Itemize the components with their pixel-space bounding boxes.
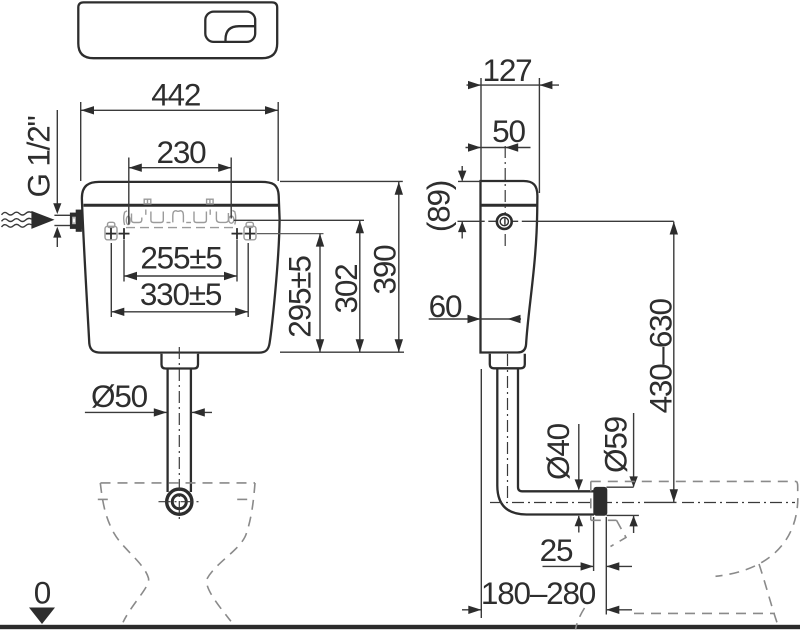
svg-text:230: 230: [157, 134, 207, 170]
svg-text:302: 302: [328, 265, 364, 314]
svg-text:180–280: 180–280: [481, 575, 596, 611]
svg-text:330±5: 330±5: [140, 276, 222, 312]
svg-text:0: 0: [34, 575, 51, 611]
svg-text:Ø40: Ø40: [540, 423, 576, 480]
svg-text:25: 25: [540, 532, 573, 568]
svg-text:50: 50: [492, 113, 525, 149]
svg-text:Ø59: Ø59: [598, 416, 634, 473]
svg-text:295±5: 295±5: [282, 256, 318, 338]
svg-text:390: 390: [367, 245, 403, 295]
svg-text:127: 127: [483, 52, 532, 88]
svg-text:(89): (89): [421, 181, 457, 232]
svg-text:430–630: 430–630: [643, 299, 679, 414]
svg-text:G 1/2": G 1/2": [21, 116, 57, 197]
svg-text:255±5: 255±5: [140, 240, 222, 276]
svg-text:Ø50: Ø50: [91, 378, 148, 414]
svg-text:442: 442: [151, 77, 200, 113]
svg-text:60: 60: [429, 288, 462, 324]
